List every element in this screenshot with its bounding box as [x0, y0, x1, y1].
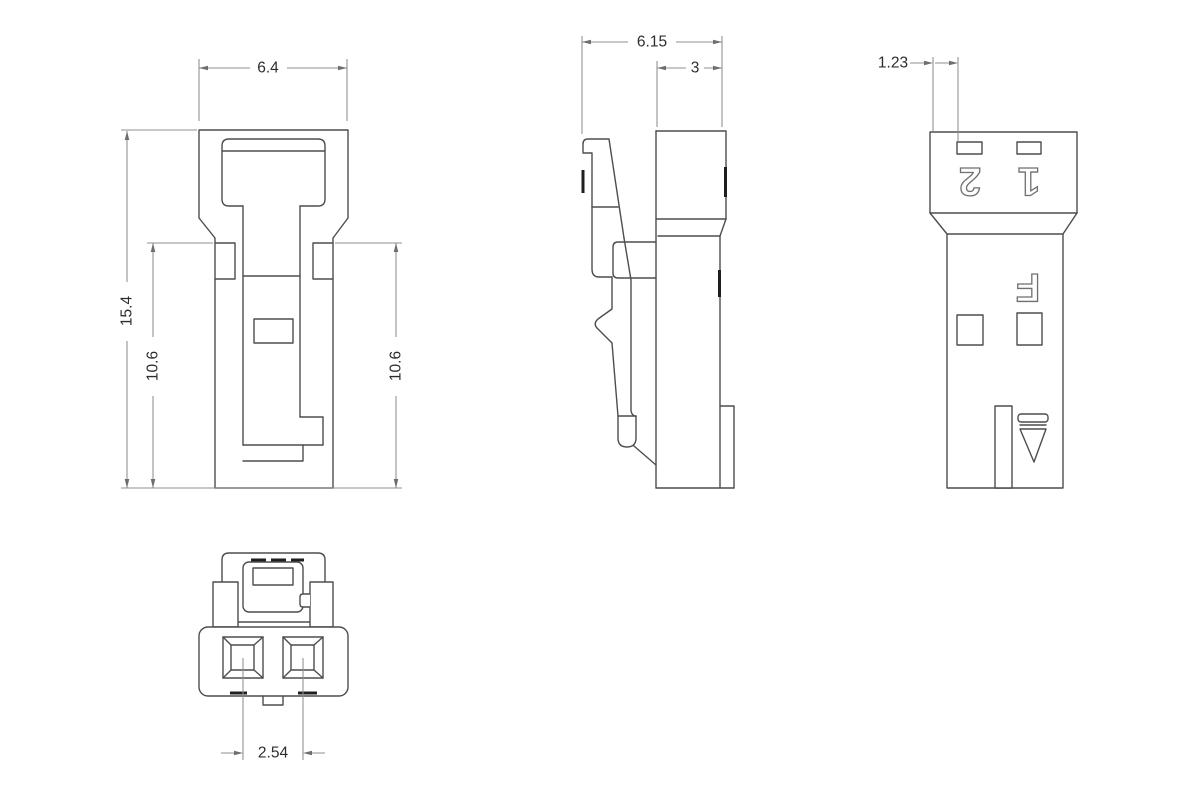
dim-label-front-width: 6.4 [257, 60, 279, 77]
terminal-window-left [957, 315, 983, 345]
terminal-window-right [1017, 313, 1042, 345]
dim-rear-slot-offset: 1.23 [878, 55, 958, 143]
dim-label-front-overall-height: 15.4 [119, 296, 136, 327]
latch-tab-right [310, 582, 333, 627]
dim-label-front-slot-height-right: 10.6 [388, 351, 405, 381]
side-view: 6.15 3 [582, 34, 734, 489]
wire-slot-2 [957, 142, 982, 154]
dim-label-bottom-pin-pitch: 2.54 [258, 745, 289, 762]
drawing-svg: 6.4 15.4 10.6 [0, 0, 1200, 800]
material-mark-f: F [1016, 265, 1040, 309]
dim-side-overall-depth: 6.15 [582, 34, 722, 135]
front-dimensions: 6.4 15.4 10.6 [119, 59, 405, 488]
dim-front-slot-height-right: 10.6 [335, 243, 405, 488]
front-body-outline [199, 130, 348, 488]
dim-label-side-overall-depth: 6.15 [637, 34, 667, 51]
rear-dimensions: 1.23 [878, 55, 958, 143]
engineering-drawing: 6.4 15.4 10.6 [0, 0, 1200, 800]
dim-label-rear-slot-offset: 1.23 [878, 55, 908, 72]
mating-face [199, 627, 348, 696]
dim-side-body-depth: 3 [657, 60, 722, 128]
side-dimensions: 6.15 3 [582, 34, 722, 135]
polarizing-rib [995, 406, 1012, 488]
dim-front-slot-height-left: 10.6 [145, 243, 214, 488]
pin-number-1: 1 [1018, 159, 1040, 203]
dim-label-front-slot-height-left: 10.6 [145, 351, 162, 381]
bottom-view: 2.54 [199, 553, 348, 762]
pin-number-2: 2 [959, 159, 981, 203]
dim-front-width: 6.4 [199, 59, 347, 121]
latch-tab-left [213, 582, 238, 627]
rear-body-outline [930, 132, 1077, 488]
bottom-body-outline [199, 553, 348, 705]
wire-slot-1 [1017, 142, 1041, 154]
rear-view: 2 1 F 1.23 [878, 55, 1077, 489]
orientation-arrow-icon [1018, 414, 1048, 462]
dim-label-side-body-depth: 3 [691, 60, 700, 77]
side-body-outline [583, 131, 734, 488]
front-view: 6.4 15.4 10.6 [119, 59, 405, 488]
dim-front-overall-height: 15.4 [119, 130, 403, 488]
